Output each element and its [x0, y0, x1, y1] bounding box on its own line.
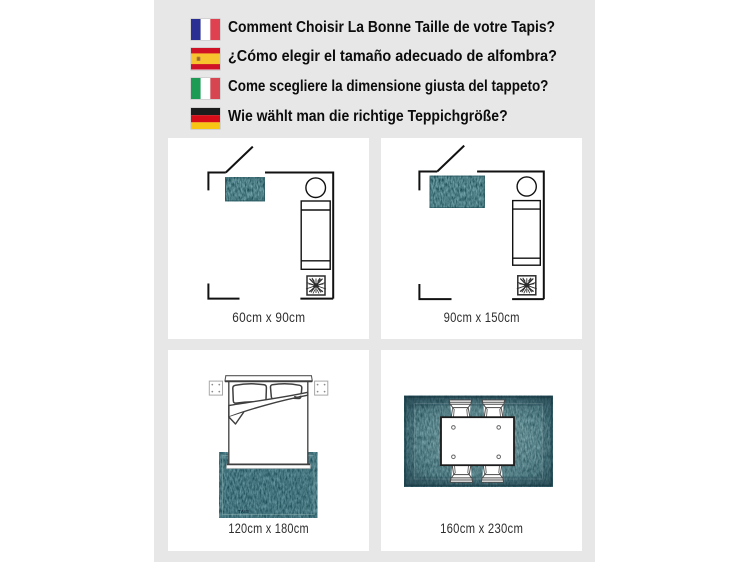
svg-text:TAIS: TAIS: [238, 509, 249, 514]
